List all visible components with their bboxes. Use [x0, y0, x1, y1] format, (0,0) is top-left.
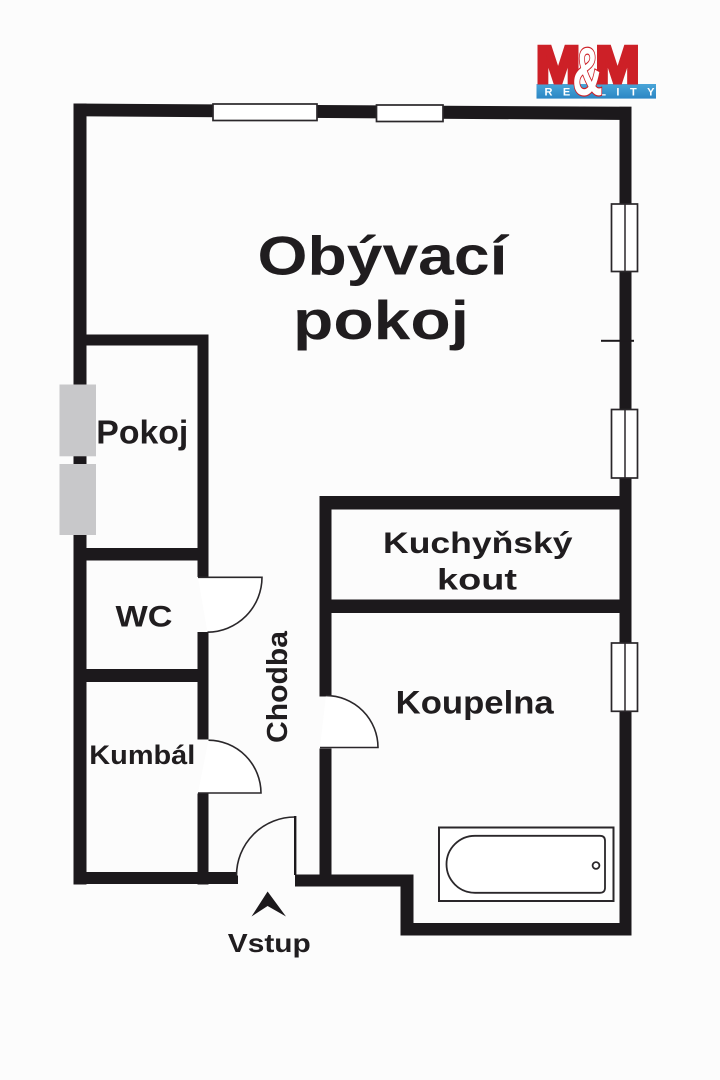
svg-text:Vstup: Vstup	[228, 928, 311, 958]
svg-text:Kumbál: Kumbál	[89, 740, 195, 770]
svg-text:Pokoj: Pokoj	[96, 414, 188, 451]
svg-text:pokoj: pokoj	[293, 289, 469, 351]
svg-text:Obývací: Obývací	[258, 225, 510, 287]
svg-text:Kuchyňský: Kuchyňský	[383, 527, 573, 560]
svg-text:Koupelna: Koupelna	[396, 685, 554, 721]
svg-text:Chodba: Chodba	[262, 630, 294, 743]
svg-text:&: &	[572, 34, 602, 110]
svg-text:WC: WC	[116, 600, 173, 633]
svg-text:kout: kout	[437, 563, 517, 596]
